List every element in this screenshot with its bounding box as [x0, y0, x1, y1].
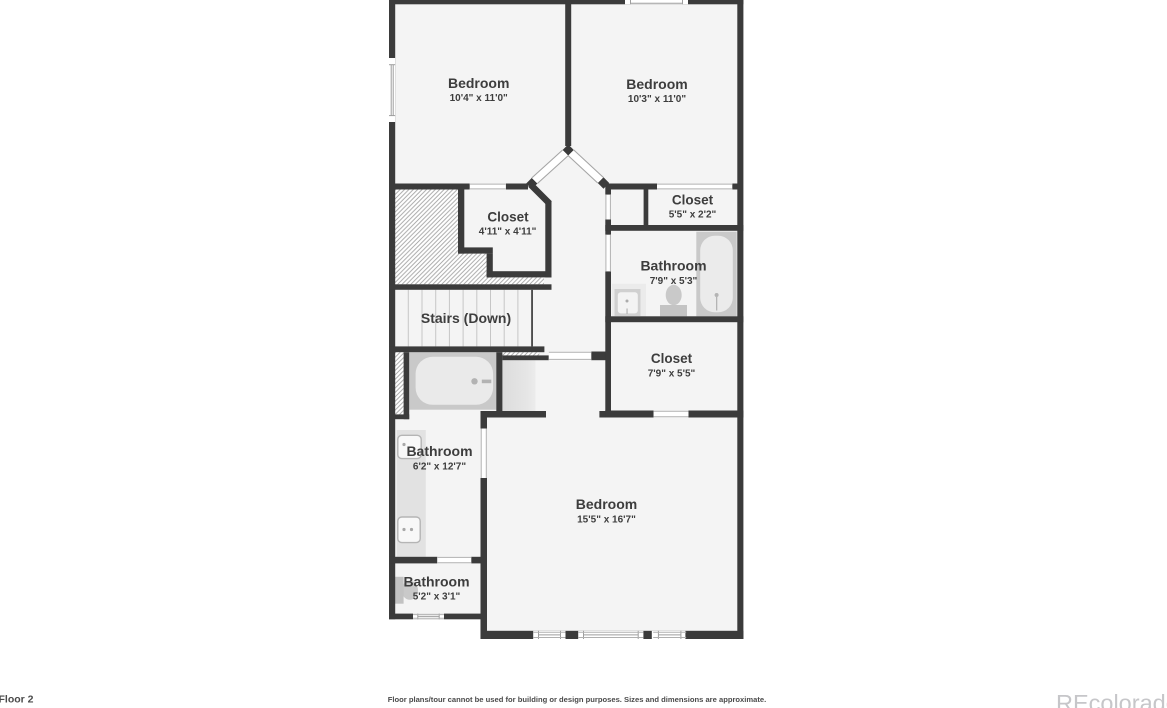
svg-text:Bedroom: Bedroom [448, 75, 509, 91]
svg-text:Bathroom: Bathroom [403, 574, 469, 590]
svg-text:Stairs (Down): Stairs (Down) [421, 310, 511, 326]
svg-text:Closet: Closet [672, 193, 714, 208]
svg-text:4'11" x 4'11": 4'11" x 4'11" [479, 226, 537, 237]
svg-text:6'2" x 12'7": 6'2" x 12'7" [413, 461, 466, 472]
svg-text:Closet: Closet [487, 209, 529, 224]
svg-text:5'2" x 3'1": 5'2" x 3'1" [413, 592, 461, 603]
svg-text:REcolorado: REcolorado [1056, 690, 1167, 708]
svg-text:Bedroom: Bedroom [576, 496, 637, 512]
svg-text:10'3" x 11'0": 10'3" x 11'0" [628, 94, 686, 105]
svg-text:15'5" x 16'7": 15'5" x 16'7" [577, 514, 636, 525]
svg-text:Closet: Closet [651, 351, 693, 366]
svg-text:7'9" x 5'3": 7'9" x 5'3" [650, 276, 698, 287]
svg-text:Bathroom: Bathroom [640, 258, 706, 274]
svg-text:Bedroom: Bedroom [626, 76, 687, 92]
svg-text:Floor plans/tour cannot be use: Floor plans/tour cannot be used for buil… [388, 695, 766, 704]
svg-text:10'4" x 11'0": 10'4" x 11'0" [450, 93, 508, 104]
svg-text:7'9" x 5'5": 7'9" x 5'5" [648, 369, 696, 380]
svg-text:5'5" x 2'2": 5'5" x 2'2" [669, 210, 717, 221]
svg-text:Bathroom: Bathroom [406, 443, 472, 459]
svg-text:Floor 2: Floor 2 [0, 693, 34, 705]
